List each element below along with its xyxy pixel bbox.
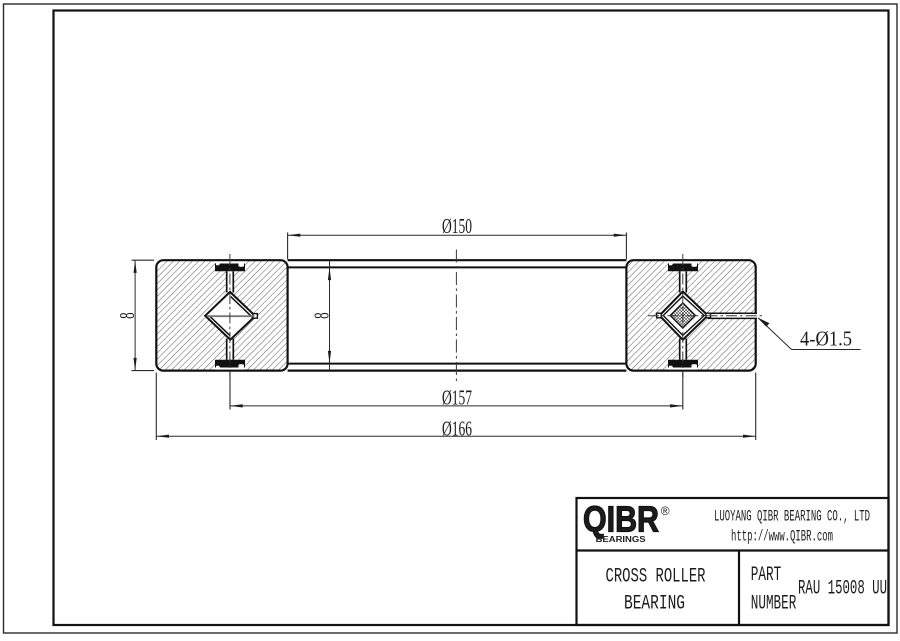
svg-text:8: 8 xyxy=(115,312,139,319)
svg-text:8: 8 xyxy=(309,312,333,319)
svg-text:LUOYANG QIBR BEARING CO., LTD: LUOYANG QIBR BEARING CO., LTD xyxy=(714,508,870,526)
svg-text:NUMBER: NUMBER xyxy=(751,592,797,615)
svg-text:CROSS ROLLER: CROSS ROLLER xyxy=(606,566,706,589)
svg-text:Ø166: Ø166 xyxy=(442,417,472,441)
svg-text:http://www.QIBR.com: http://www.QIBR.com xyxy=(731,528,833,546)
svg-text:4-Ø1.5: 4-Ø1.5 xyxy=(800,327,852,351)
svg-text:BEARING: BEARING xyxy=(624,592,685,615)
svg-text:RAU 15008 UU: RAU 15008 UU xyxy=(798,577,887,600)
svg-text:Ø157: Ø157 xyxy=(442,385,472,409)
svg-text:Ø150: Ø150 xyxy=(442,214,472,238)
svg-text:PART: PART xyxy=(751,564,782,587)
svg-text:QIBR: QIBR xyxy=(583,499,659,540)
svg-text:BEARINGS: BEARINGS xyxy=(596,535,647,544)
svg-text:®: ® xyxy=(661,504,670,518)
